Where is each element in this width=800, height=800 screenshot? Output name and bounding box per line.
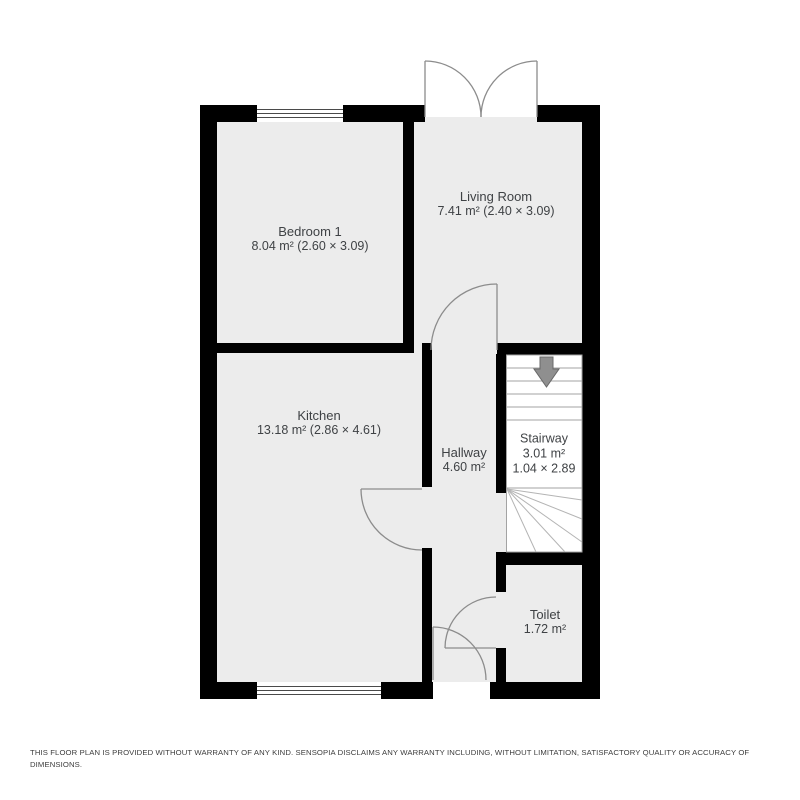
kitchen-door-opening (422, 487, 432, 548)
bedroom-window (257, 105, 343, 122)
room-name: Stairway (513, 432, 576, 447)
room-area: 3.01 m² (513, 447, 576, 462)
room-details: 8.04 m² (2.60 × 3.09) (251, 239, 368, 254)
hallway-label: Hallway 4.60 m² (441, 445, 487, 475)
entry-threshold-top (425, 117, 537, 122)
room-name: Bedroom 1 (251, 224, 368, 239)
front-door-opening (433, 682, 490, 699)
hallway-floor (432, 353, 496, 682)
room-name: Kitchen (257, 408, 381, 423)
kitchen-label: Kitchen 13.18 m² (2.86 × 4.61) (257, 408, 381, 438)
disclaimer-text: THIS FLOOR PLAN IS PROVIDED WITHOUT WARR… (30, 747, 754, 770)
kitchen-window (257, 682, 381, 699)
room-details: 13.18 m² (2.86 × 4.61) (257, 423, 381, 438)
floor-plan-drawing (0, 0, 800, 800)
toilet-door-opening (496, 592, 506, 648)
room-details: 7.41 m² (2.40 × 3.09) (437, 204, 554, 219)
room-details: 4.60 m² (441, 460, 487, 475)
room-name: Toilet (524, 607, 566, 622)
living-room-label: Living Room 7.41 m² (2.40 × 3.09) (437, 189, 554, 219)
stairway-label: Stairway 3.01 m² 1.04 × 2.89 (513, 432, 576, 477)
kitchen-floor (217, 353, 422, 682)
room-dimensions: 1.04 × 2.89 (513, 462, 576, 477)
room-name: Living Room (437, 189, 554, 204)
room-details: 1.72 m² (524, 622, 566, 637)
floor-plan-page: Bedroom 1 8.04 m² (2.60 × 3.09) Living R… (0, 0, 800, 800)
living-room-floor (414, 122, 582, 343)
room-name: Hallway (441, 445, 487, 460)
stairway-opening (496, 493, 506, 552)
bedroom-1-label: Bedroom 1 8.04 m² (2.60 × 3.09) (251, 224, 368, 254)
toilet-label: Toilet 1.72 m² (524, 607, 566, 637)
